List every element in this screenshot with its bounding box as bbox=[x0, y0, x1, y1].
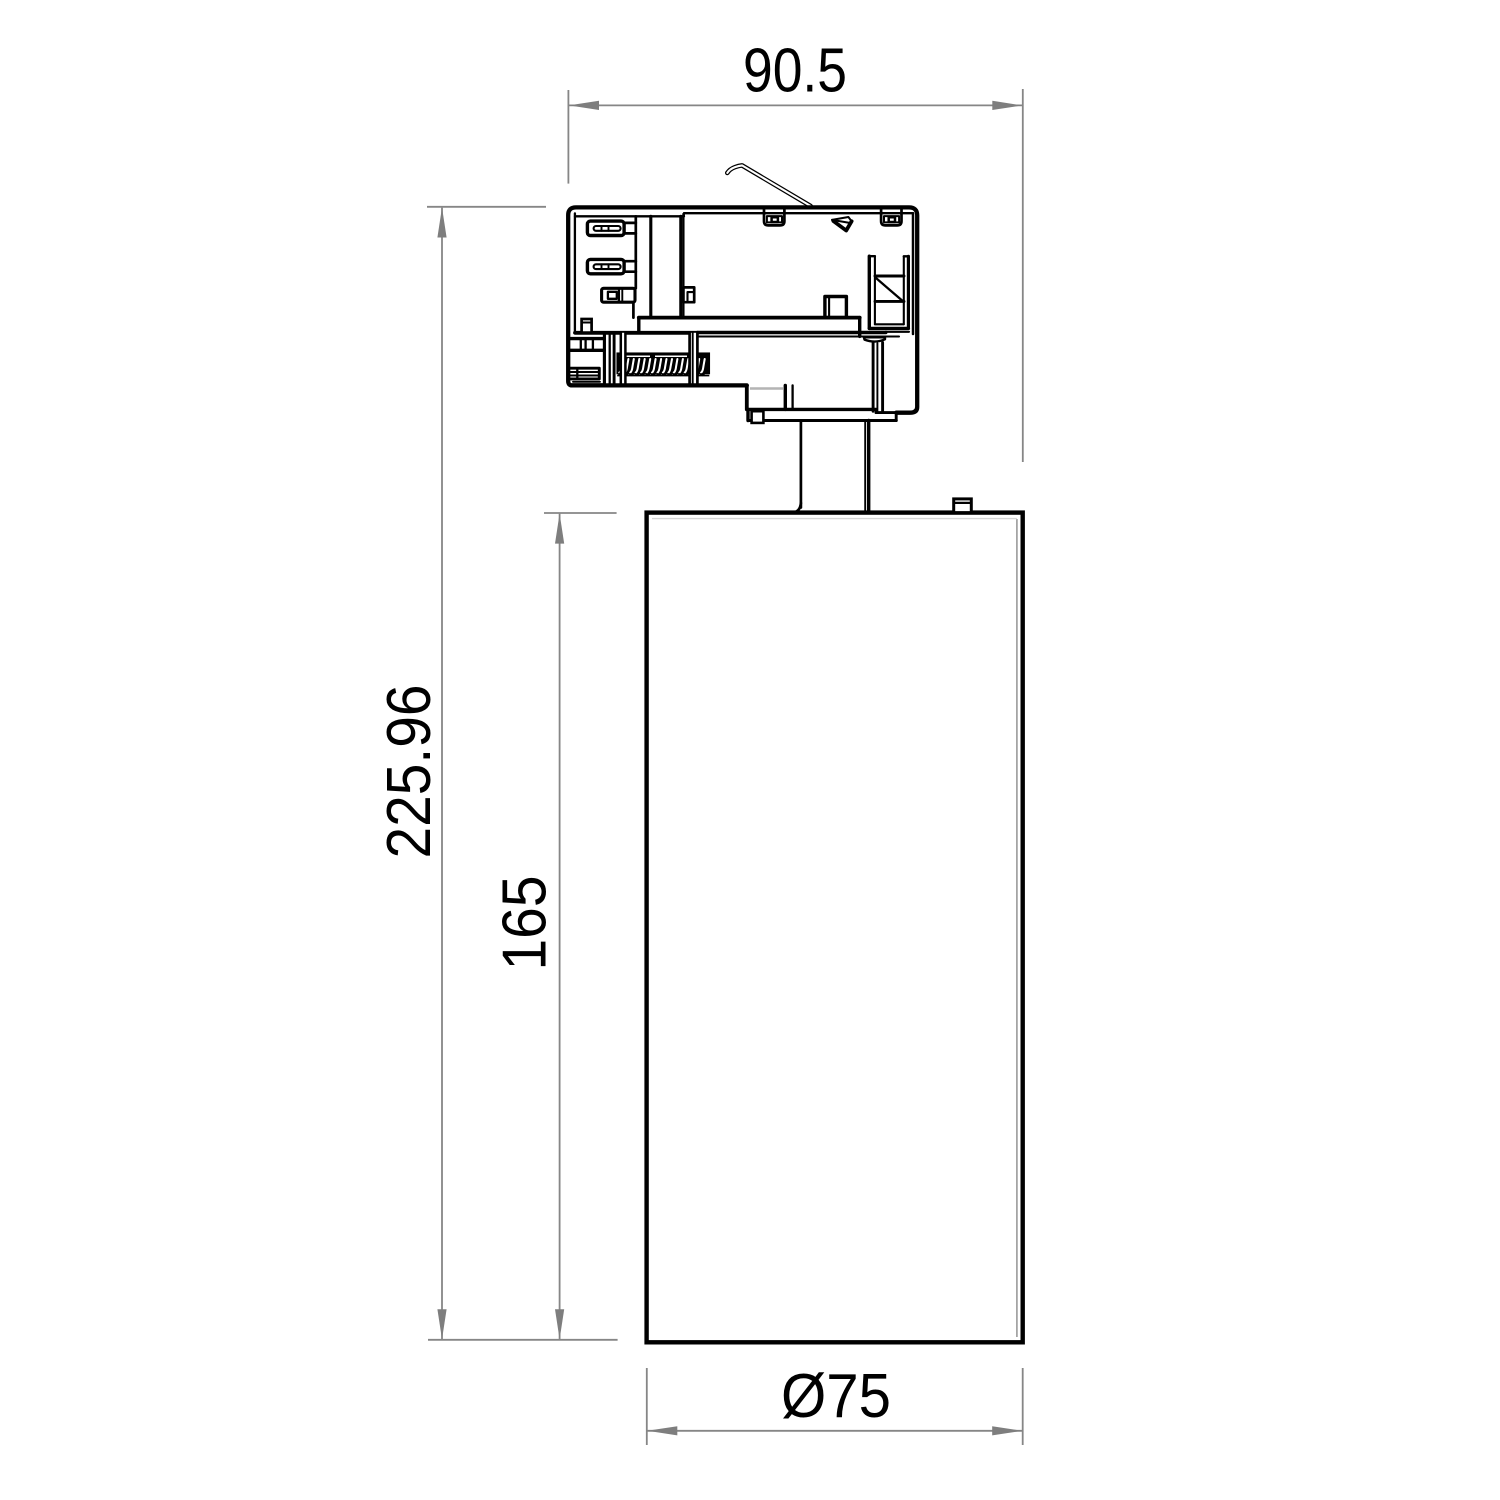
svg-text:90.5: 90.5 bbox=[743, 37, 847, 106]
svg-text:Ø75: Ø75 bbox=[781, 1362, 891, 1431]
svg-text:165: 165 bbox=[491, 876, 560, 971]
svg-text:225.96: 225.96 bbox=[375, 685, 444, 859]
